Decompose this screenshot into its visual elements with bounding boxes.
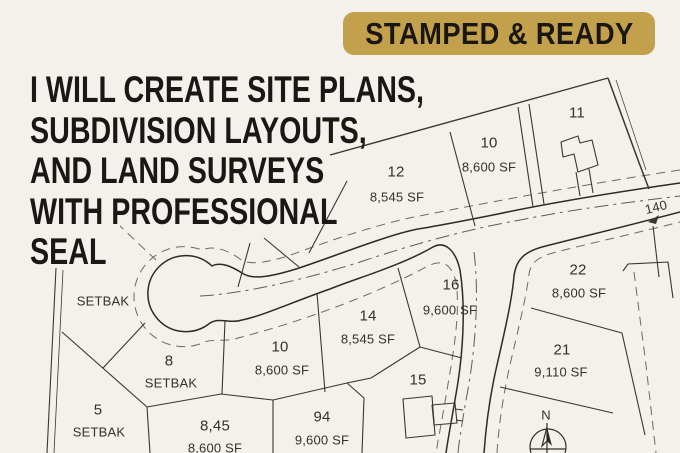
plat-label: 22: [569, 262, 586, 279]
headline-line: I WILL CREATE SITE PLANS,: [30, 70, 424, 111]
badge-text: STAMPED & READY: [365, 16, 633, 52]
stamped-ready-badge: STAMPED & READY: [343, 12, 655, 55]
plat-label: 16: [442, 277, 459, 294]
plat-label: 15: [409, 372, 426, 389]
plat-label: 21: [553, 342, 570, 359]
plat-label: SETBAK: [145, 376, 198, 391]
plat-label: 140: [643, 197, 668, 217]
plat-label: SETBAK: [73, 425, 126, 440]
plat-label: 10: [271, 339, 288, 356]
plat-label: 8,600 SF: [462, 160, 516, 175]
plat-label: 8: [165, 353, 174, 370]
headline-line: SEAL: [30, 232, 424, 273]
plat-label: 11: [569, 105, 585, 122]
plat-label: N: [541, 408, 551, 423]
plat-label: 9,600 SF: [423, 303, 477, 318]
plat-label: 9,600 SF: [295, 433, 349, 448]
plat-label: 8,600 SF: [552, 286, 606, 301]
plat-label: 14: [359, 308, 376, 325]
headline-line: WITH PROFESSIONAL: [30, 192, 424, 233]
plat-label: 94: [313, 409, 330, 426]
plat-label: 5: [94, 402, 103, 419]
plat-label: 8,545 SF: [341, 332, 395, 347]
headline: I WILL CREATE SITE PLANS, SUBDIVISION LA…: [30, 70, 424, 273]
plat-label: 8,600 SF: [188, 441, 242, 453]
plat-label: 8,45: [200, 418, 230, 435]
headline-line: AND LAND SURVEYS: [30, 151, 424, 192]
headline-line: SUBDIVISION LAYOUTS,: [30, 111, 424, 152]
plat-label: SETBAK: [77, 294, 130, 309]
gig-cover: 128,545 SF108,600 SF11140228,600 SF169,6…: [0, 0, 680, 453]
plat-label: 10: [480, 135, 497, 152]
plat-label: 8,600 SF: [255, 363, 309, 378]
plat-label: 9,110 SF: [534, 365, 587, 380]
